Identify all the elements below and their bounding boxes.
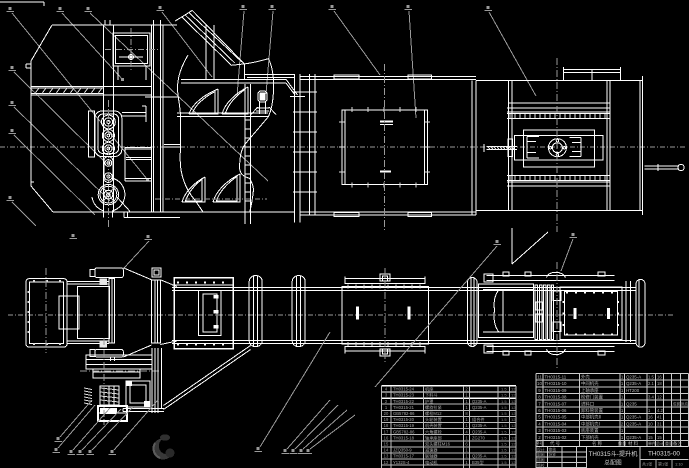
svg-text:1.5: 1.5 <box>501 454 507 459</box>
svg-text:1.5: 1.5 <box>501 423 507 428</box>
svg-text:1.5: 1.5 <box>501 435 507 440</box>
svg-text:TH0315-06: TH0315-06 <box>545 408 568 413</box>
svg-text:Q235: Q235 <box>626 401 637 406</box>
svg-text:上轴承座: 上轴承座 <box>581 387 599 394</box>
svg-text:下部机壳: 下部机壳 <box>581 434 599 441</box>
svg-text:TH0315-10: TH0315-10 <box>545 381 568 386</box>
svg-text:螺栓M12: 螺栓M12 <box>425 410 442 417</box>
svg-text:TH0315-08: TH0315-08 <box>545 395 568 400</box>
svg-text:中间机壳: 中间机壳 <box>581 380 599 387</box>
svg-text:31: 31 <box>657 421 662 426</box>
svg-text:19: 19 <box>384 417 389 422</box>
svg-text:GB5782-86: GB5782-86 <box>393 429 415 434</box>
svg-text:12: 12 <box>657 395 662 400</box>
svg-text:41: 41 <box>657 415 662 420</box>
svg-text:HT200: HT200 <box>626 388 640 393</box>
svg-text:进料口: 进料口 <box>581 400 594 407</box>
svg-text:审核: 审核 <box>549 447 557 452</box>
svg-text:Q235-A: Q235-A <box>472 429 487 434</box>
svg-text:总计: 总计 <box>656 440 664 446</box>
svg-text:设计: 设计 <box>537 447 545 452</box>
svg-text:2.1: 2.1 <box>648 381 654 386</box>
svg-text:Q235-A: Q235-A <box>472 423 487 428</box>
svg-text:Q235-A: Q235-A <box>626 415 641 420</box>
svg-text:批准: 批准 <box>549 452 557 457</box>
svg-text:12: 12 <box>511 387 516 392</box>
svg-text:14: 14 <box>384 448 389 453</box>
svg-text:12: 12 <box>511 435 516 440</box>
svg-text:TH0315-03: TH0315-03 <box>545 428 568 433</box>
svg-text:双头螺柱M16: 双头螺柱M16 <box>425 441 451 448</box>
svg-text:1.5: 1.5 <box>501 429 507 434</box>
svg-text:卸料管装置: 卸料管装置 <box>581 407 604 414</box>
svg-text:Q235-A: Q235-A <box>626 375 641 380</box>
svg-text:描校: 描校 <box>537 463 545 468</box>
svg-text:螺旋拉紧: 螺旋拉紧 <box>425 404 442 411</box>
svg-text:TH0315-24: TH0315-24 <box>393 387 415 392</box>
svg-text:TH0315-23: TH0315-23 <box>393 393 415 398</box>
svg-text:1:10: 1:10 <box>675 462 684 467</box>
svg-text:10: 10 <box>648 421 653 426</box>
svg-text:1.5: 1.5 <box>501 411 507 416</box>
svg-text:12: 12 <box>384 460 389 465</box>
svg-text:ZG270: ZG270 <box>472 435 485 440</box>
svg-text:TH0315-07: TH0315-07 <box>545 401 568 406</box>
svg-text:16: 16 <box>657 375 662 380</box>
svg-text:检修门装置: 检修门装置 <box>581 394 604 401</box>
svg-text:GB5782-86: GB5782-86 <box>393 411 415 416</box>
svg-text:12: 12 <box>511 399 516 404</box>
svg-text:12: 12 <box>511 442 516 447</box>
svg-text:B35型: B35型 <box>472 459 484 465</box>
svg-text:17: 17 <box>384 429 389 434</box>
svg-text:Q235-A: Q235-A <box>472 405 487 410</box>
svg-text:Q235-A: Q235-A <box>626 381 641 386</box>
svg-text:TH0315-11: TH0315-11 <box>545 375 567 380</box>
svg-text:TH0315-00: TH0315-00 <box>648 451 680 458</box>
svg-text:15: 15 <box>384 442 389 447</box>
svg-text:TH0315-05: TH0315-05 <box>545 415 568 420</box>
svg-text:减速器: 减速器 <box>425 447 438 454</box>
svg-text:1.5: 1.5 <box>501 387 507 392</box>
svg-text:16: 16 <box>384 435 389 440</box>
svg-text:18: 18 <box>384 423 389 428</box>
svg-text:共1张: 共1张 <box>642 461 652 467</box>
svg-text:12: 12 <box>511 429 516 434</box>
svg-text:Q235-A: Q235-A <box>626 421 641 426</box>
svg-text:12: 12 <box>511 454 516 459</box>
svg-text:10: 10 <box>537 381 542 386</box>
svg-text:TH0315-21: TH0315-21 <box>393 405 415 410</box>
svg-text:头轮装置: 头轮装置 <box>425 416 442 423</box>
svg-text:TH0315-09: TH0315-09 <box>545 388 568 393</box>
svg-text:12: 12 <box>511 417 516 422</box>
svg-text:1.5: 1.5 <box>501 405 507 410</box>
svg-text:TH0315-20: TH0315-20 <box>393 417 415 422</box>
svg-text:1.5: 1.5 <box>501 417 507 422</box>
svg-text:制图: 制图 <box>537 452 545 457</box>
svg-text:12: 12 <box>511 393 516 398</box>
svg-text:成套供应: 成套供应 <box>673 400 689 406</box>
svg-text:总配图: 总配图 <box>604 459 622 467</box>
svg-text:TH0315-17: TH0315-17 <box>393 454 415 459</box>
svg-text:1.5: 1.5 <box>501 460 507 465</box>
svg-text:Y132S-4: Y132S-4 <box>393 460 410 465</box>
svg-text:4.2: 4.2 <box>657 408 663 413</box>
svg-text:12: 12 <box>511 423 516 428</box>
svg-text:1.5: 1.5 <box>648 375 654 380</box>
svg-text:13: 13 <box>384 454 389 459</box>
svg-text:单件: 单件 <box>648 440 656 446</box>
svg-text:18: 18 <box>657 381 662 386</box>
svg-text:Q235-A: Q235-A <box>472 454 487 459</box>
svg-text:1.5: 1.5 <box>501 442 507 447</box>
svg-text:TH0315-18: TH0315-18 <box>393 435 415 440</box>
svg-text:12: 12 <box>511 460 516 465</box>
svg-text:JZQ350-9: JZQ350-9 <box>393 448 412 453</box>
svg-text:护罩: 护罩 <box>425 398 433 405</box>
svg-text:中部机壳Ⅱ: 中部机壳Ⅱ <box>581 414 601 421</box>
svg-text:TH0315-22: TH0315-22 <box>393 399 415 404</box>
svg-text:15: 15 <box>657 435 662 440</box>
svg-text:组合件: 组合件 <box>472 416 485 423</box>
svg-text:轴承座部: 轴承座部 <box>425 434 442 441</box>
svg-text:描图: 描图 <box>537 458 545 463</box>
svg-text:3.4: 3.4 <box>648 395 654 400</box>
svg-text:Q235-A: Q235-A <box>472 399 487 404</box>
svg-text:底座装置: 底座装置 <box>581 427 599 434</box>
svg-text:12: 12 <box>511 411 516 416</box>
svg-text:Q235-A: Q235-A <box>626 435 641 440</box>
svg-text:1.5: 1.5 <box>501 393 507 398</box>
svg-text:联轴器: 联轴器 <box>425 453 438 460</box>
svg-text:六角螺栓: 六角螺栓 <box>425 428 443 435</box>
svg-text:中部机壳Ⅰ: 中部机壳Ⅰ <box>581 420 600 427</box>
svg-text:TH0315斗-提升机: TH0315斗-提升机 <box>589 450 639 458</box>
svg-text:20: 20 <box>384 411 389 416</box>
svg-text:1.5: 1.5 <box>501 399 507 404</box>
svg-text:重量: 重量 <box>665 440 673 446</box>
svg-text:TH0315-02: TH0315-02 <box>545 435 568 440</box>
svg-text:TH0315-19: TH0315-19 <box>393 423 415 428</box>
svg-text:12: 12 <box>511 448 516 453</box>
svg-text:12: 12 <box>511 405 516 410</box>
svg-text:机座: 机座 <box>425 386 433 393</box>
svg-text:TH0315-04: TH0315-04 <box>545 421 568 426</box>
svg-text:下料斗: 下料斗 <box>425 392 438 399</box>
svg-text:外壳: 外壳 <box>581 374 590 381</box>
svg-text:15: 15 <box>648 435 653 440</box>
svg-text:16: 16 <box>648 415 653 420</box>
svg-text:11: 11 <box>537 375 542 380</box>
svg-text:第1张: 第1张 <box>658 461 668 467</box>
svg-text:机壳装置: 机壳装置 <box>425 422 442 429</box>
svg-text:1.5: 1.5 <box>501 448 507 453</box>
svg-text:电动机: 电动机 <box>425 459 438 466</box>
